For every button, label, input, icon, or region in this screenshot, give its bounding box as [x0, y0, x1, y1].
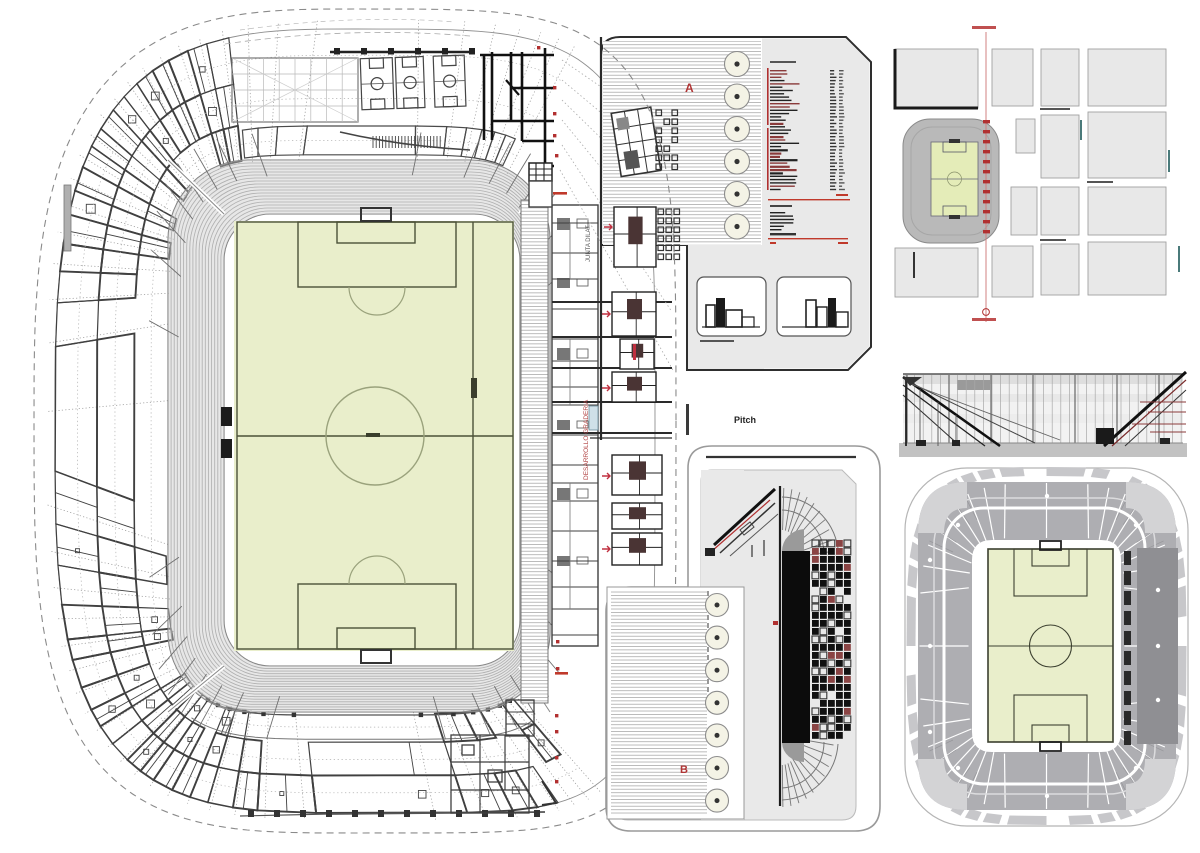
- svg-text:B: B: [680, 764, 688, 776]
- svg-text:Pitch: Pitch: [734, 415, 756, 425]
- svg-text:JUNTA DILAT.: JUNTA DILAT.: [586, 224, 592, 262]
- svg-text:A: A: [685, 81, 694, 95]
- svg-text:DESARROLLO GRADERIA: DESARROLLO GRADERIA: [583, 399, 590, 480]
